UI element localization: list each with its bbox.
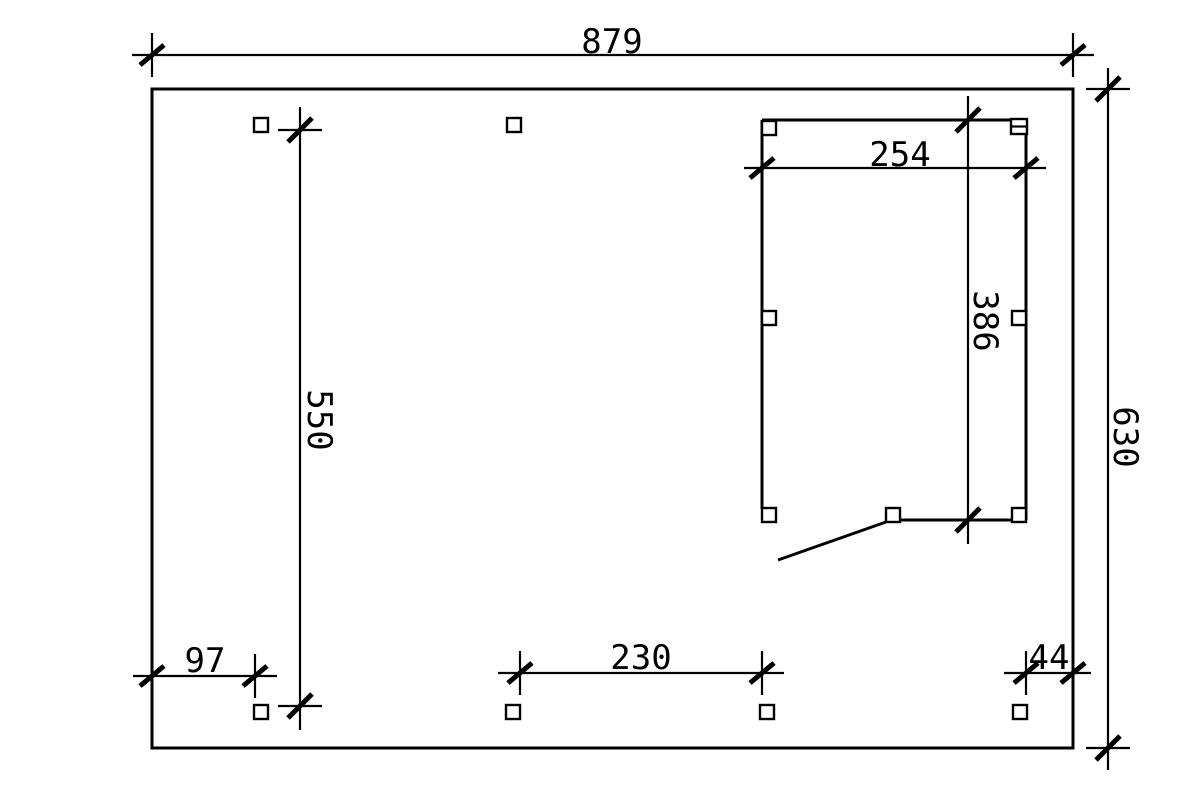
post-bottom-3: [760, 705, 774, 719]
dim-overall-width: 879: [132, 22, 1094, 77]
dim-label-left-post-offset: 97: [185, 641, 226, 681]
shed-post-bottom-left: [762, 508, 776, 522]
post-top-left: [254, 118, 268, 132]
dim-label-front-post-spacing: 230: [610, 638, 671, 678]
dim-label-post-row-span: 550: [299, 389, 339, 450]
shed-post-mid-left: [762, 311, 776, 325]
dim-label-shed-depth: 386: [965, 290, 1005, 351]
floor-plan-drawing: 879 630 550 254 386: [0, 0, 1200, 800]
shed-post-bottom-right: [1012, 508, 1026, 522]
dim-right-post-offset: 44: [1004, 638, 1091, 695]
dim-shed-width: 254: [744, 135, 1046, 190]
dim-left-post-offset: 97: [133, 641, 277, 698]
dim-label-overall-width: 879: [581, 22, 642, 62]
posts: [254, 118, 1027, 719]
dim-front-post-spacing: 230: [498, 638, 784, 695]
dim-post-row-span: 550: [278, 107, 339, 730]
post-bottom-2: [506, 705, 520, 719]
dim-label-right-post-offset: 44: [1029, 638, 1070, 678]
dim-label-overall-height: 630: [1105, 406, 1145, 467]
dim-overall-height: 630: [1086, 68, 1145, 770]
shed-post-bottom-middle: [886, 508, 900, 522]
shed-beam-symbol-top-right: [1011, 119, 1027, 134]
post-bottom-4: [1013, 705, 1027, 719]
dim-label-shed-width: 254: [869, 135, 930, 175]
dim-shed-depth: 386: [946, 96, 1005, 544]
floor-plan-svg: 879 630 550 254 386: [0, 0, 1200, 800]
shed-post-top-left: [762, 121, 776, 135]
post-top-middle: [507, 118, 521, 132]
post-bottom-1: [254, 705, 268, 719]
shed-post-mid-right: [1012, 311, 1026, 325]
door-swing-line: [778, 522, 886, 560]
